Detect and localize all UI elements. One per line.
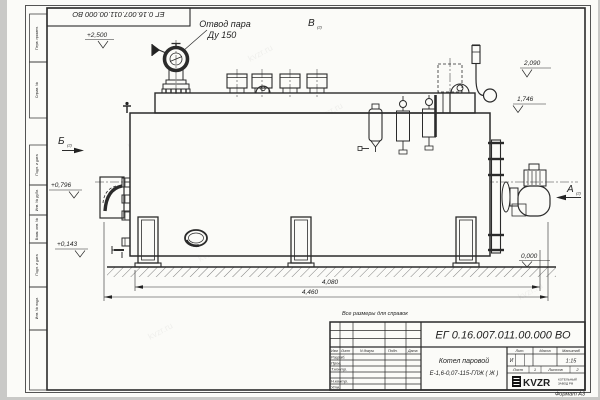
- watermark: kvzr.ru: [246, 42, 274, 63]
- sheet-value: 1: [534, 367, 536, 372]
- elevation-value: 0,000: [521, 253, 538, 260]
- margin-label: Подп. и дата: [35, 154, 39, 175]
- kvzr-logo-text: KVZR: [523, 378, 551, 389]
- view-letter-a: А: [566, 184, 574, 195]
- kvzr-logo: KVZR КОТЕЛЬНЫЙ ЗАВОД РФ: [512, 376, 577, 389]
- margin-label: Перв. примен.: [35, 26, 39, 50]
- product-name-1: Котел паровой: [439, 357, 489, 365]
- burner: [100, 177, 130, 218]
- elevation-value: +2,500: [87, 32, 107, 39]
- dim-overall-length: 4,460: [302, 289, 319, 296]
- elevation-1746: 1,746: [513, 96, 546, 113]
- sheet-label: Лист: [512, 367, 524, 372]
- title-doc-number: ЕГ 0.16.007.011.00.000 ВО: [435, 330, 571, 342]
- margin-label: Справ. №: [35, 82, 39, 98]
- top-doc-number-box: ЕГ 0.16.007.011.00.000 ВО: [47, 8, 190, 26]
- elevation-value: +0,796: [51, 182, 71, 189]
- row-tkontr: Т.контр.: [331, 367, 347, 372]
- product-name-2: Е-1,6-0,07-115-ГЛЖ ( Ж ): [430, 371, 499, 377]
- margin-label: Подп. и дата: [35, 254, 39, 275]
- elevation-2500: +2,500: [85, 32, 114, 48]
- sheets-label: Листов: [547, 367, 563, 372]
- kvzr-sub-2: ЗАВОД РФ: [558, 382, 574, 386]
- row-prov: Пров.: [331, 361, 342, 366]
- sheets-value: 2: [575, 367, 579, 372]
- margin-label: Инв. № подл.: [35, 297, 39, 319]
- col-ndoc: N докум.: [360, 349, 375, 353]
- scale-value: 1:15: [566, 359, 578, 365]
- row-razrab: Разраб.: [331, 355, 345, 360]
- row-utv: Утв.: [331, 385, 340, 390]
- ground: [107, 267, 556, 277]
- view-sheet-ref: (2): [317, 25, 323, 30]
- lit-value: И: [510, 358, 514, 364]
- format-label: Формат А3: [555, 392, 586, 398]
- hdr-massa: Масса: [539, 349, 550, 353]
- margin-label: Взам. инв. №: [35, 218, 39, 240]
- view-marker-b: Б (2): [58, 136, 84, 153]
- steam-outlet-label: Отвод пара Ду 150: [183, 19, 251, 51]
- elevation-value: 1,746: [517, 96, 534, 103]
- row-nkontr: Н.контр.: [331, 379, 348, 384]
- elevation-0000: 0,000: [519, 253, 550, 267]
- hdr-lit: Лит.: [515, 349, 525, 353]
- col-podp: Подп.: [388, 349, 398, 353]
- view-sheet-ref: (2): [576, 191, 582, 196]
- boiler-drawing-svg: kvzr.ru kvzr.ru kvzr.ru kvzr.ru kvzr.ru …: [0, 0, 600, 400]
- view-sheet-ref: (2): [67, 143, 73, 148]
- hdr-masshtab: Масштаб: [562, 349, 581, 353]
- top-doc-number: ЕГ 0.16.007.011.00.000 ВО: [72, 10, 164, 19]
- view-letter-b: Б: [58, 136, 65, 147]
- reference-note: Все размеры для справок: [342, 311, 408, 317]
- elevation-0143: +0,143: [55, 241, 88, 257]
- col-izm: Изм: [331, 349, 338, 353]
- elevation-value: +0,143: [57, 241, 77, 248]
- dim-body-length: 4,080: [322, 279, 339, 286]
- col-list: Лист: [340, 349, 350, 353]
- fan-unit: [502, 164, 550, 216]
- steam-outlet-valve: [152, 44, 190, 94]
- margin-label: Инв. № дубл.: [35, 189, 39, 211]
- vent-stub: [123, 102, 131, 113]
- steam-drum-top: [155, 93, 475, 113]
- steam-outlet-text-2: Ду 150: [207, 30, 236, 40]
- margin-stamp-column: Перв. примен. Справ. № Подп. и дата Инв.…: [30, 14, 48, 390]
- lifting-lug-left: [256, 86, 270, 93]
- view-marker-v: В (2): [308, 18, 323, 30]
- watermark: kvzr.ru: [146, 320, 174, 341]
- steam-outlet-text-1: Отвод пара: [199, 19, 250, 29]
- view-letter-v: В: [308, 18, 315, 29]
- elevation-2090: 2,090: [520, 60, 551, 77]
- title-block: Изм Лист N докум. Подп. Дата Разраб. Про…: [330, 322, 585, 390]
- col-data: Дата: [407, 349, 417, 353]
- drum-hatches: [227, 74, 327, 93]
- view-marker-a: А (2): [556, 184, 582, 200]
- elevation-value: 2,090: [523, 60, 541, 67]
- elevation-0796: +0,796: [49, 182, 82, 198]
